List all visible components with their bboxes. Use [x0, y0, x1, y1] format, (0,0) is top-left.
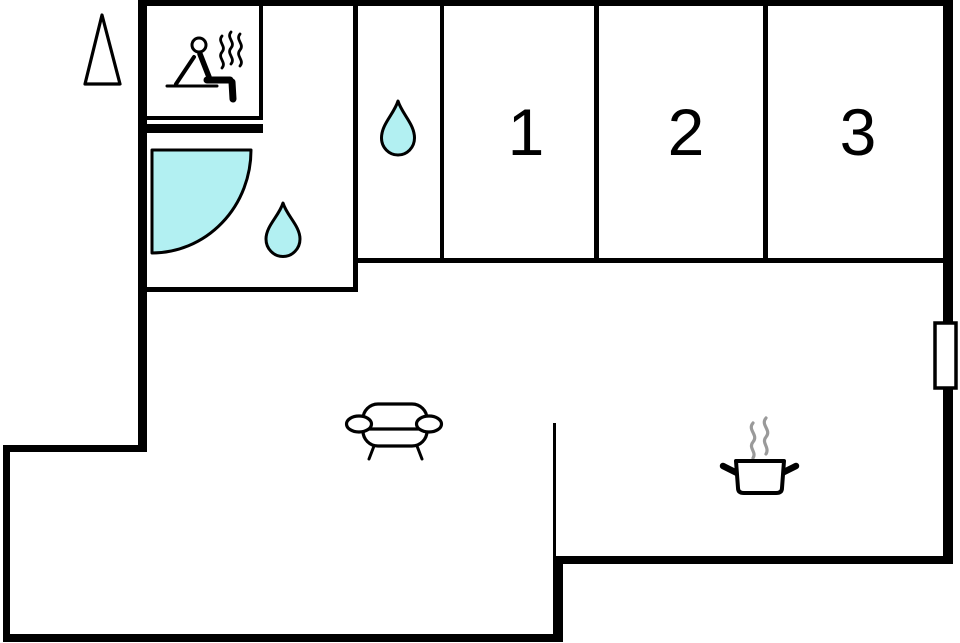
- wall-bottom-right: [553, 556, 953, 564]
- wall-bedroom2-bedroom3: [763, 6, 768, 262]
- wall-bottom: [3, 634, 563, 642]
- wall-step-horizontal: [3, 445, 138, 452]
- wall-step-vertical: [553, 556, 563, 642]
- bedroom-2-label: 2: [668, 95, 705, 169]
- wall-sauna-bottom: [138, 124, 263, 133]
- wall-right: [943, 0, 953, 564]
- sauna-person-head: [192, 38, 206, 52]
- wall-bedroom1-bedroom2: [594, 6, 599, 262]
- wall-kitchen-partition: [553, 423, 556, 558]
- sauna-room: [145, 4, 261, 118]
- floor-plan: 1 2 3: [0, 0, 960, 643]
- bedroom-1-label: 1: [508, 95, 545, 169]
- sofa-armrest-left: [347, 416, 372, 432]
- pot-body: [736, 461, 784, 493]
- sofa-armrest-right: [417, 416, 442, 432]
- wall-bathroom-right: [353, 4, 358, 292]
- wall-left-lower: [3, 445, 10, 642]
- window-marker: [935, 323, 956, 388]
- wall-washroom-bedroom1: [440, 6, 444, 262]
- bedroom-3-label: 3: [840, 95, 877, 169]
- wall-bathroom-bottom: [138, 287, 358, 292]
- sauna-person-calf: [232, 82, 233, 99]
